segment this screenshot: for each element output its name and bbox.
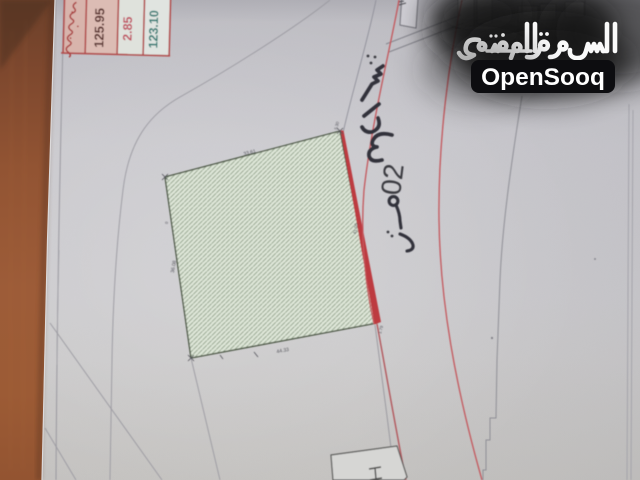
svg-text:125.95: 125.95 [91, 8, 107, 48]
svg-text:OpenSooq: OpenSooq [481, 64, 605, 91]
svg-text:02: 02 [375, 162, 410, 197]
svg-text:123.10: 123.10 [146, 10, 161, 49]
svg-text:2.85: 2.85 [120, 16, 135, 41]
